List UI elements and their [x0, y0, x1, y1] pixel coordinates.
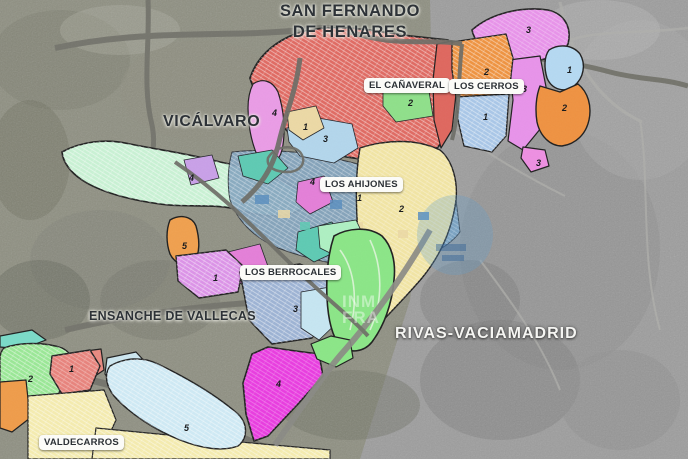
map-image: 2 4 1 3 3 2 3 1 1 2 3 4 4 1 2 5 1 3 4 2 … [0, 0, 688, 459]
global-grain [0, 0, 688, 459]
map-canvas[interactable]: 2 4 1 3 3 2 3 1 1 2 3 4 4 1 2 5 1 3 4 2 … [0, 0, 688, 459]
